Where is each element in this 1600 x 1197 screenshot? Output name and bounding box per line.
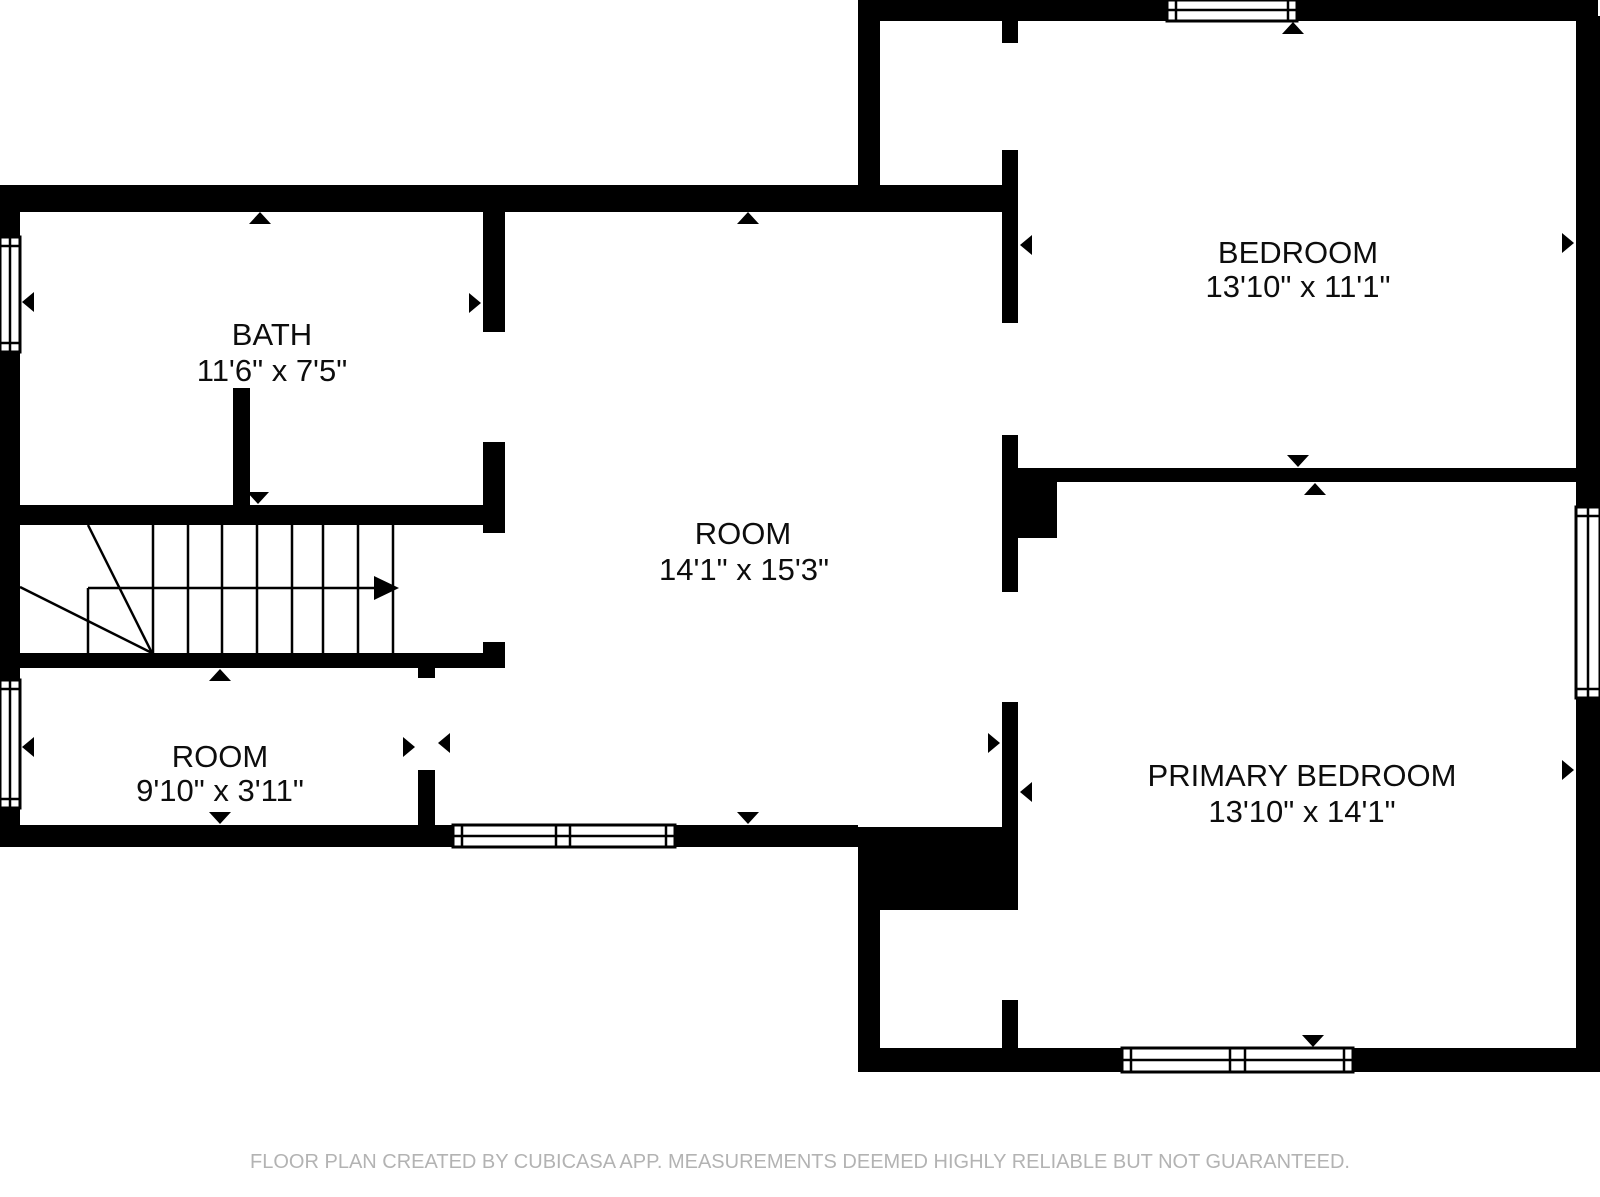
room-dims-bedroom: 13'10" x 11'1" <box>1206 269 1391 304</box>
bedroom-top-window <box>1167 0 1297 21</box>
arrow-up-icon <box>1282 22 1304 34</box>
walls <box>0 0 1600 1072</box>
wall-bedrooms-divider <box>1018 468 1576 482</box>
arrow-right-icon <box>1562 233 1574 253</box>
room-label-primary-bedroom: PRIMARY BEDROOM <box>1148 758 1457 793</box>
staircase <box>20 525 399 653</box>
arrow-left-icon <box>1020 235 1032 255</box>
arrow-up-icon <box>209 669 231 681</box>
arrow-down-icon <box>1302 1035 1324 1047</box>
room-dims-bath: 11'6" x 7'5" <box>197 353 347 388</box>
wall-closet-left <box>858 0 880 185</box>
wall-bottom-left-b <box>675 825 858 847</box>
wall-stairs-corner-stub <box>483 642 505 668</box>
arrow-up-icon <box>737 212 759 224</box>
wall-smallroom-right-top <box>418 668 435 678</box>
arrow-down-icon <box>1287 455 1309 467</box>
room-label-center-room: ROOM <box>695 516 791 551</box>
room-dims-center-room: 14'1" x 15'3" <box>659 552 829 587</box>
small-room-window <box>0 680 20 808</box>
arrow-right-icon <box>403 737 415 757</box>
wall-bath-partition <box>233 388 250 505</box>
room-labels: BATH 11'6" x 7'5" ROOM 14'1" x 15'3" BED… <box>136 235 1456 829</box>
wall-top-left-block <box>0 185 1018 212</box>
arrow-right-icon <box>988 733 1000 753</box>
primary-right-window <box>1576 507 1600 698</box>
floor-plan: BATH 11'6" x 7'5" ROOM 14'1" x 15'3" BED… <box>0 0 1600 1197</box>
wall-divider-stub-block <box>1002 468 1057 538</box>
room-label-bath: BATH <box>232 317 312 352</box>
wall-smallroom-right-bottom <box>418 770 435 827</box>
windows <box>0 0 1600 1072</box>
wall-junction-block <box>858 827 1018 910</box>
dimension-arrows <box>22 22 1574 1047</box>
arrow-right-icon <box>469 293 481 313</box>
primary-bottom-double-window <box>1122 1048 1353 1072</box>
stair-winder-line <box>20 587 152 653</box>
arrow-up-icon <box>1304 483 1326 495</box>
arrow-left-icon <box>22 292 34 312</box>
arrow-down-icon <box>247 492 269 504</box>
wall-corridor-b <box>1002 150 1018 323</box>
wall-entry-left <box>858 842 880 1072</box>
arrow-up-icon <box>249 212 271 224</box>
floor-plan-svg: BATH 11'6" x 7'5" ROOM 14'1" x 15'3" BED… <box>0 0 1600 1197</box>
wall-corridor-a <box>1002 0 1018 43</box>
arrow-left-icon <box>22 737 34 757</box>
wall-entry-right <box>1002 1000 1018 1052</box>
arrow-left-icon <box>1020 782 1032 802</box>
wall-bath-right-top <box>483 211 505 332</box>
room-dims-small-room: 9'10" x 3'11" <box>136 773 304 808</box>
arrow-left-icon <box>438 733 450 753</box>
wall-bottom-left-a <box>0 825 453 847</box>
bath-window <box>0 237 20 352</box>
wall-stairs-bottom <box>0 653 500 668</box>
footer-disclaimer: FLOOR PLAN CREATED BY CUBICASA APP. MEAS… <box>250 1151 1350 1173</box>
room-bottom-double-window <box>453 825 675 847</box>
room-label-small-room: ROOM <box>172 739 268 774</box>
wall-bath-bottom <box>0 505 500 525</box>
wall-corridor-d <box>1002 702 1018 827</box>
arrow-down-icon <box>737 812 759 824</box>
arrow-right-icon <box>1562 760 1574 780</box>
room-label-bedroom: BEDROOM <box>1218 235 1378 270</box>
arrow-down-icon <box>209 812 231 824</box>
stair-direction-arrow-icon <box>88 576 399 600</box>
room-dims-primary-bedroom: 13'10" x 14'1" <box>1208 794 1395 829</box>
